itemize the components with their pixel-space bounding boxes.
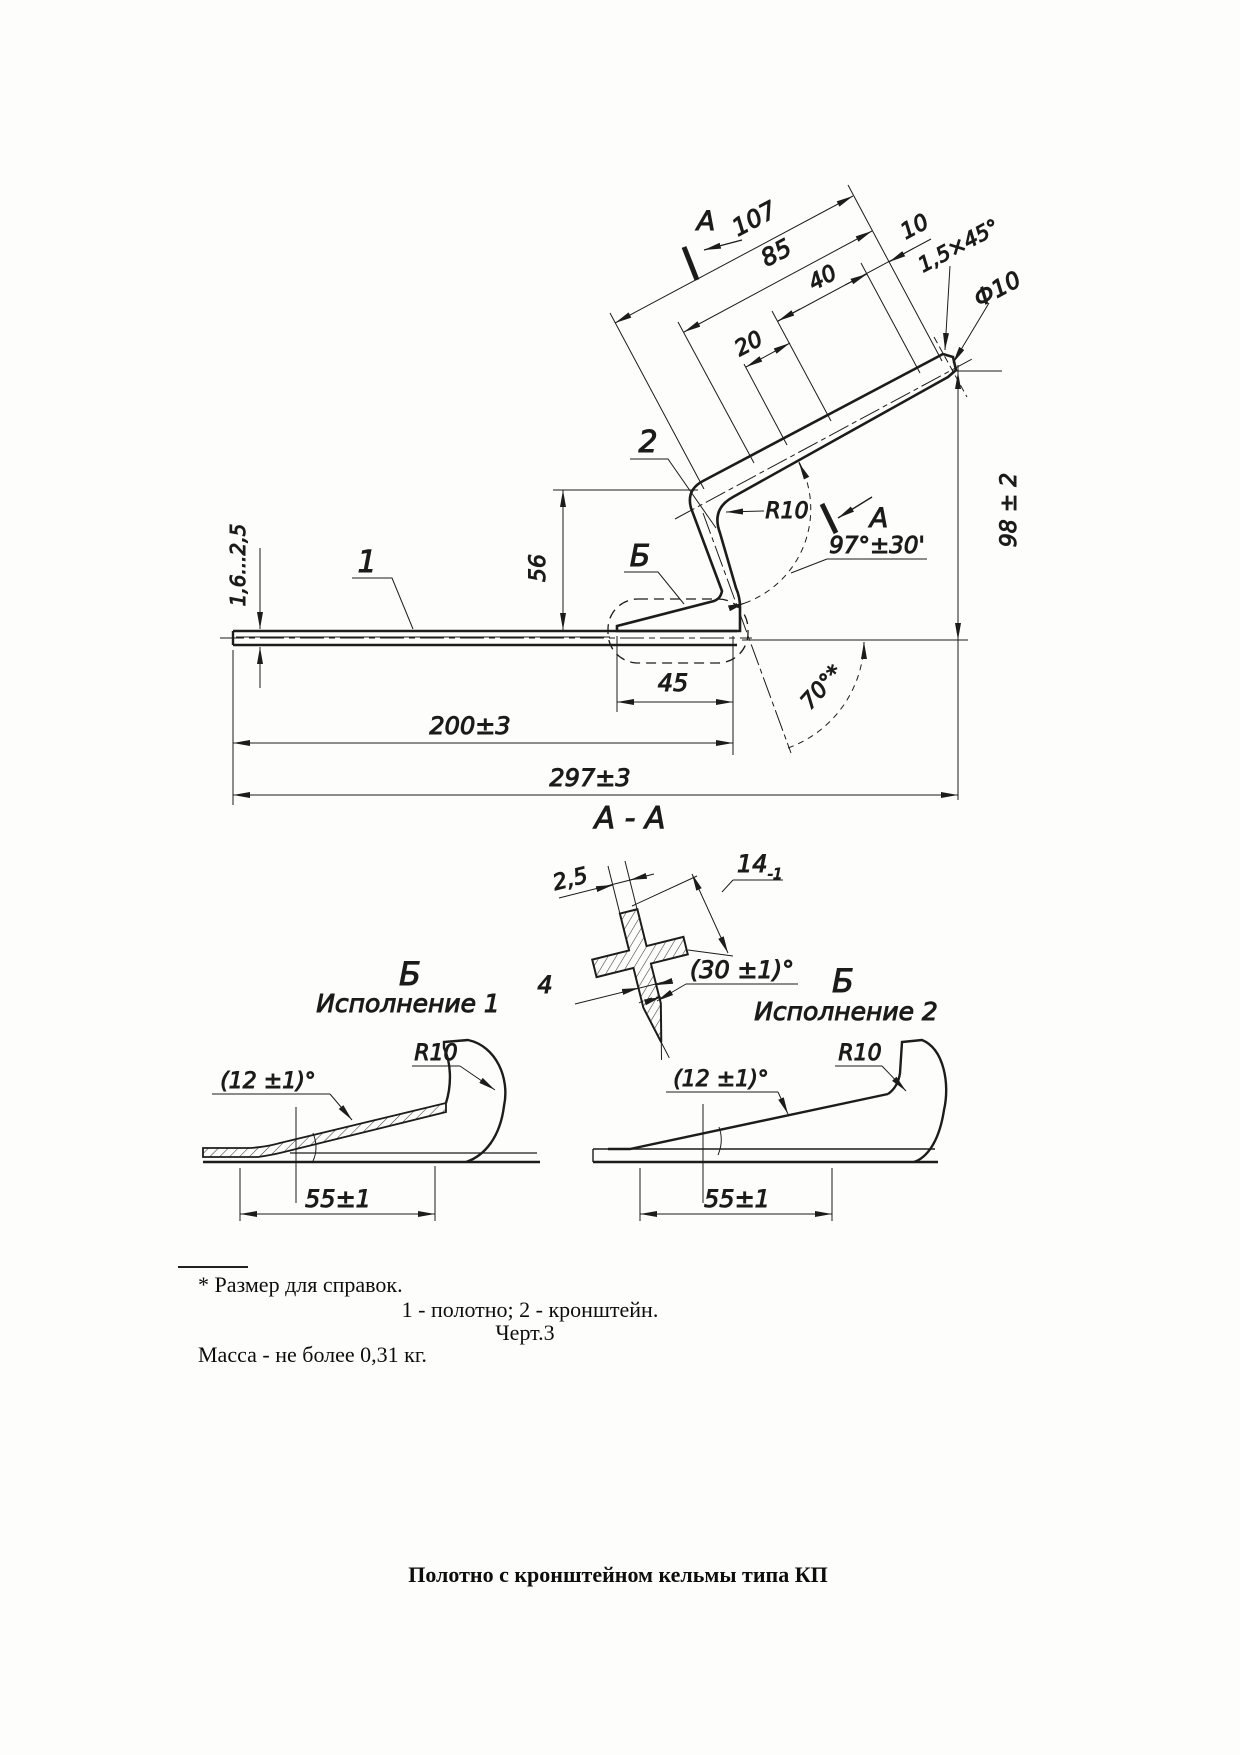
dim-radius: R10 bbox=[765, 499, 808, 524]
angle97-arc bbox=[745, 462, 811, 603]
part-label-bracket: 2 bbox=[638, 425, 657, 460]
detail1-angle12: (12 ±1)° bbox=[220, 1069, 316, 1094]
chamfer-leader bbox=[945, 266, 950, 350]
diameter-leader bbox=[953, 303, 989, 363]
detail1-len55: 55±1 bbox=[305, 1185, 371, 1213]
dim-20: 20 bbox=[731, 327, 767, 362]
dim-200: 200±3 bbox=[429, 712, 510, 740]
section-mark-mid bbox=[822, 497, 872, 533]
detail2-bracket-profile bbox=[888, 1040, 946, 1162]
section-letter-top: А bbox=[695, 206, 715, 237]
dim-297: 297±3 bbox=[549, 764, 630, 792]
detail1-variant: Исполнение 1 bbox=[316, 989, 500, 1018]
detail2-angle12: (12 ±1)° bbox=[673, 1067, 769, 1092]
dim-height98: 98 ± 2 bbox=[997, 473, 1022, 547]
footnote-rule bbox=[178, 1266, 248, 1268]
cross-section-shape bbox=[583, 900, 711, 1070]
dim-85: 85 bbox=[756, 233, 796, 272]
mass-note: Масса - не более 0,31 кг. bbox=[198, 1342, 427, 1368]
handle-centerline bbox=[675, 358, 974, 519]
figure-number: Черт.3 bbox=[495, 1320, 554, 1346]
dim-107: 107 bbox=[727, 195, 781, 242]
detail2-marker: Б bbox=[832, 962, 854, 1000]
dim-angle97: 97°±30' bbox=[829, 533, 925, 559]
dim-10: 10 bbox=[897, 210, 933, 245]
detail2-len55: 55±1 bbox=[704, 1185, 770, 1213]
dim-angle30: (30 ±1)° bbox=[690, 956, 794, 984]
bracket-axis-extension bbox=[703, 513, 791, 753]
dim-angle70: 70°* bbox=[796, 661, 848, 715]
radius-leader bbox=[726, 511, 764, 512]
document-page: 107 85 40 20 10 1,5×45° Ф10 А А R10 97°±… bbox=[0, 0, 1240, 1755]
footnote-reference: * Размер для справок. bbox=[198, 1272, 403, 1298]
dim-overall: 14-1 bbox=[737, 850, 783, 883]
detail1-marker: Б bbox=[399, 955, 421, 993]
dim-diameter: Ф10 bbox=[970, 267, 1026, 313]
detail2-variant: Исполнение 2 bbox=[754, 997, 938, 1026]
engineering-drawing: 107 85 40 20 10 1,5×45° Ф10 А А R10 97°±… bbox=[0, 0, 1240, 1755]
part2-leader bbox=[630, 459, 716, 528]
section-aa: А - А 2,5 14-1 4 (30 ±1)° bbox=[537, 801, 798, 1070]
dim-45: 45 bbox=[658, 669, 689, 697]
dim-height56: 56 bbox=[526, 554, 551, 582]
blade-outline bbox=[220, 631, 752, 645]
dim-thickness: 1,6...2,5 bbox=[226, 524, 250, 607]
detail2-tapered-edge bbox=[608, 1094, 888, 1149]
part1-leader bbox=[352, 578, 413, 629]
main-view: 107 85 40 20 10 1,5×45° Ф10 А А R10 97°±… bbox=[220, 185, 1025, 805]
dim-width4: 4 bbox=[537, 971, 552, 999]
detail-marker-main: Б bbox=[630, 539, 651, 574]
detail-view-1: Б Исполнение 1 R10 (12 ±1)° 55±1 bbox=[203, 955, 540, 1221]
section-letter-mid: А bbox=[868, 503, 888, 534]
detail1-blade-section bbox=[203, 1103, 446, 1157]
diameter-extension bbox=[934, 337, 967, 397]
part-label-blade: 1 bbox=[357, 545, 376, 580]
detail1-radius: R10 bbox=[414, 1041, 457, 1066]
section-title: А - А bbox=[593, 801, 666, 836]
figure-caption: Полотно с кронштейном кельмы типа КП bbox=[408, 1562, 828, 1588]
detail2-radius: R10 bbox=[838, 1041, 881, 1066]
